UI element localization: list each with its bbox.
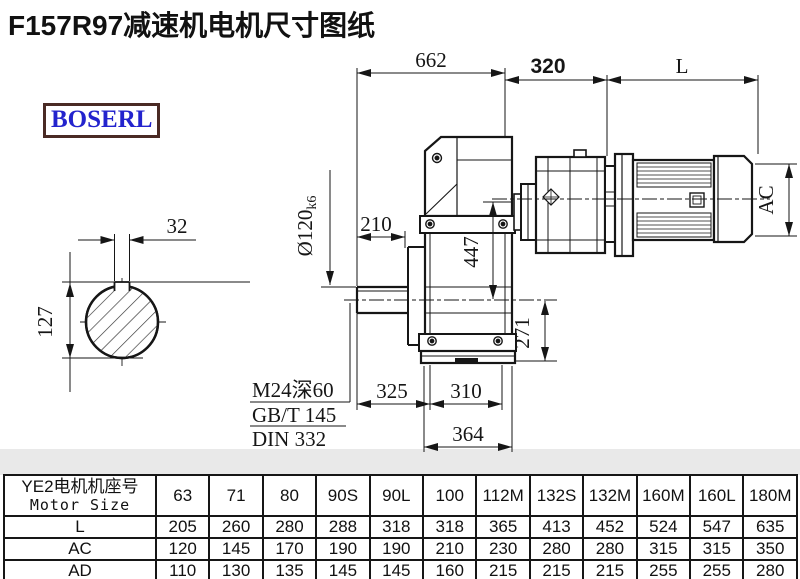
gearbox-front-view (357, 137, 516, 363)
note-din-standard: DIN 332 (252, 427, 326, 451)
col-header-cell: 63 (156, 475, 209, 516)
note-gb-standard: GB/T 145 (252, 403, 336, 427)
note-tapped-hole: M24深60 (252, 378, 334, 402)
motor-flange (615, 154, 633, 256)
row-label-cell: AD (4, 560, 156, 579)
col-header-cell: 160M (637, 475, 690, 516)
value-cell: 230 (476, 538, 529, 560)
col-header-cell: 80 (263, 475, 316, 516)
dim-base-height: 271 (510, 317, 534, 349)
col-header-cell: 100 (423, 475, 476, 516)
brand-logo: BOSERL (43, 103, 160, 138)
motor-size-label-en: Motor Size (5, 496, 155, 514)
value-cell: 315 (690, 538, 743, 560)
dim-foot-left: 325 (376, 379, 408, 403)
dim-motor-diameter: AC (754, 185, 778, 214)
value-cell: 365 (476, 516, 529, 538)
value-cell: 318 (423, 516, 476, 538)
value-cell: 120 (156, 538, 209, 560)
col-header-cell: 132M (583, 475, 636, 516)
value-cell: 170 (263, 538, 316, 560)
brand-logo-text: BOSERL (51, 106, 152, 133)
terminal-box (690, 193, 704, 207)
row-label-cell: L (4, 516, 156, 538)
value-cell: 255 (637, 560, 690, 579)
drawing-page: 662 320 L 32 127 210 Ø120k6 447 271 325 … (0, 0, 800, 579)
drain-plug (455, 358, 478, 362)
value-cell: 145 (209, 538, 262, 560)
dim-shaft-extension: 210 (360, 212, 392, 236)
value-cell: 315 (637, 538, 690, 560)
page-title: F157R97减速机电机尺寸图纸 (8, 4, 375, 44)
gear-unit-side-view (514, 150, 633, 256)
table-row: AD110130135145145160215215215255255280 (4, 560, 797, 579)
value-cell: 280 (743, 560, 797, 579)
output-hub (408, 247, 425, 345)
col-header-cell: 112M (476, 475, 529, 516)
value-cell: 255 (690, 560, 743, 579)
row-label-cell: AC (4, 538, 156, 560)
value-cell: 635 (743, 516, 797, 538)
dim-overall-length: 662 (415, 48, 447, 72)
col-header-cell: 180M (743, 475, 797, 516)
value-cell: 145 (370, 560, 423, 579)
col-header-cell: 90S (316, 475, 369, 516)
table-row: AC120145170190190210230280280315315350 (4, 538, 797, 560)
value-cell: 190 (370, 538, 423, 560)
value-cell: 190 (316, 538, 369, 560)
motor-size-label-cn: YE2电机机座号 (5, 477, 155, 496)
value-cell: 452 (583, 516, 636, 538)
dim-keyway-height: 127 (33, 306, 57, 338)
shaft-section-view (80, 278, 166, 366)
section-hatching (87, 287, 157, 357)
dim-shaft-diameter: Ø120k6 (293, 196, 320, 257)
col-header-cell: 90L (370, 475, 423, 516)
value-cell: 413 (530, 516, 583, 538)
dim-input-section: 320 (530, 55, 565, 78)
value-cell: 280 (530, 538, 583, 560)
dim-keyway-width: 32 (167, 214, 188, 238)
dim-motor-length: L (676, 54, 689, 78)
value-cell: 160 (423, 560, 476, 579)
dim-foot-width: 364 (452, 422, 484, 446)
table-corner-cell: YE2电机机座号 Motor Size (4, 475, 156, 516)
filler-plug (574, 150, 586, 157)
motor-dimensions-table: YE2电机机座号 Motor Size 63718090S90L100112M1… (3, 474, 798, 579)
coupling-neck (605, 166, 615, 242)
col-header-cell: 160L (690, 475, 743, 516)
value-cell: 288 (316, 516, 369, 538)
value-cell: 318 (370, 516, 423, 538)
value-cell: 215 (476, 560, 529, 579)
value-cell: 215 (583, 560, 636, 579)
value-cell: 135 (263, 560, 316, 579)
value-cell: 350 (743, 538, 797, 560)
col-header-cell: 132S (530, 475, 583, 516)
dim-axis-offset: 447 (459, 236, 483, 268)
value-cell: 145 (316, 560, 369, 579)
value-cell: 215 (530, 560, 583, 579)
col-header-cell: 71 (209, 475, 262, 516)
value-cell: 547 (690, 516, 743, 538)
value-cell: 280 (583, 538, 636, 560)
value-cell: 210 (423, 538, 476, 560)
value-cell: 280 (263, 516, 316, 538)
dimension-drawing: 662 320 L 32 127 210 Ø120k6 447 271 325 … (0, 0, 800, 470)
dim-foot-right: 310 (450, 379, 482, 403)
keyway (115, 282, 130, 291)
value-cell: 110 (156, 560, 209, 579)
table-header-row: YE2电机机座号 Motor Size 63718090S90L100112M1… (4, 475, 797, 516)
value-cell: 524 (637, 516, 690, 538)
value-cell: 260 (209, 516, 262, 538)
value-cell: 205 (156, 516, 209, 538)
table-row: L205260280288318318365413452524547635 (4, 516, 797, 538)
value-cell: 130 (209, 560, 262, 579)
